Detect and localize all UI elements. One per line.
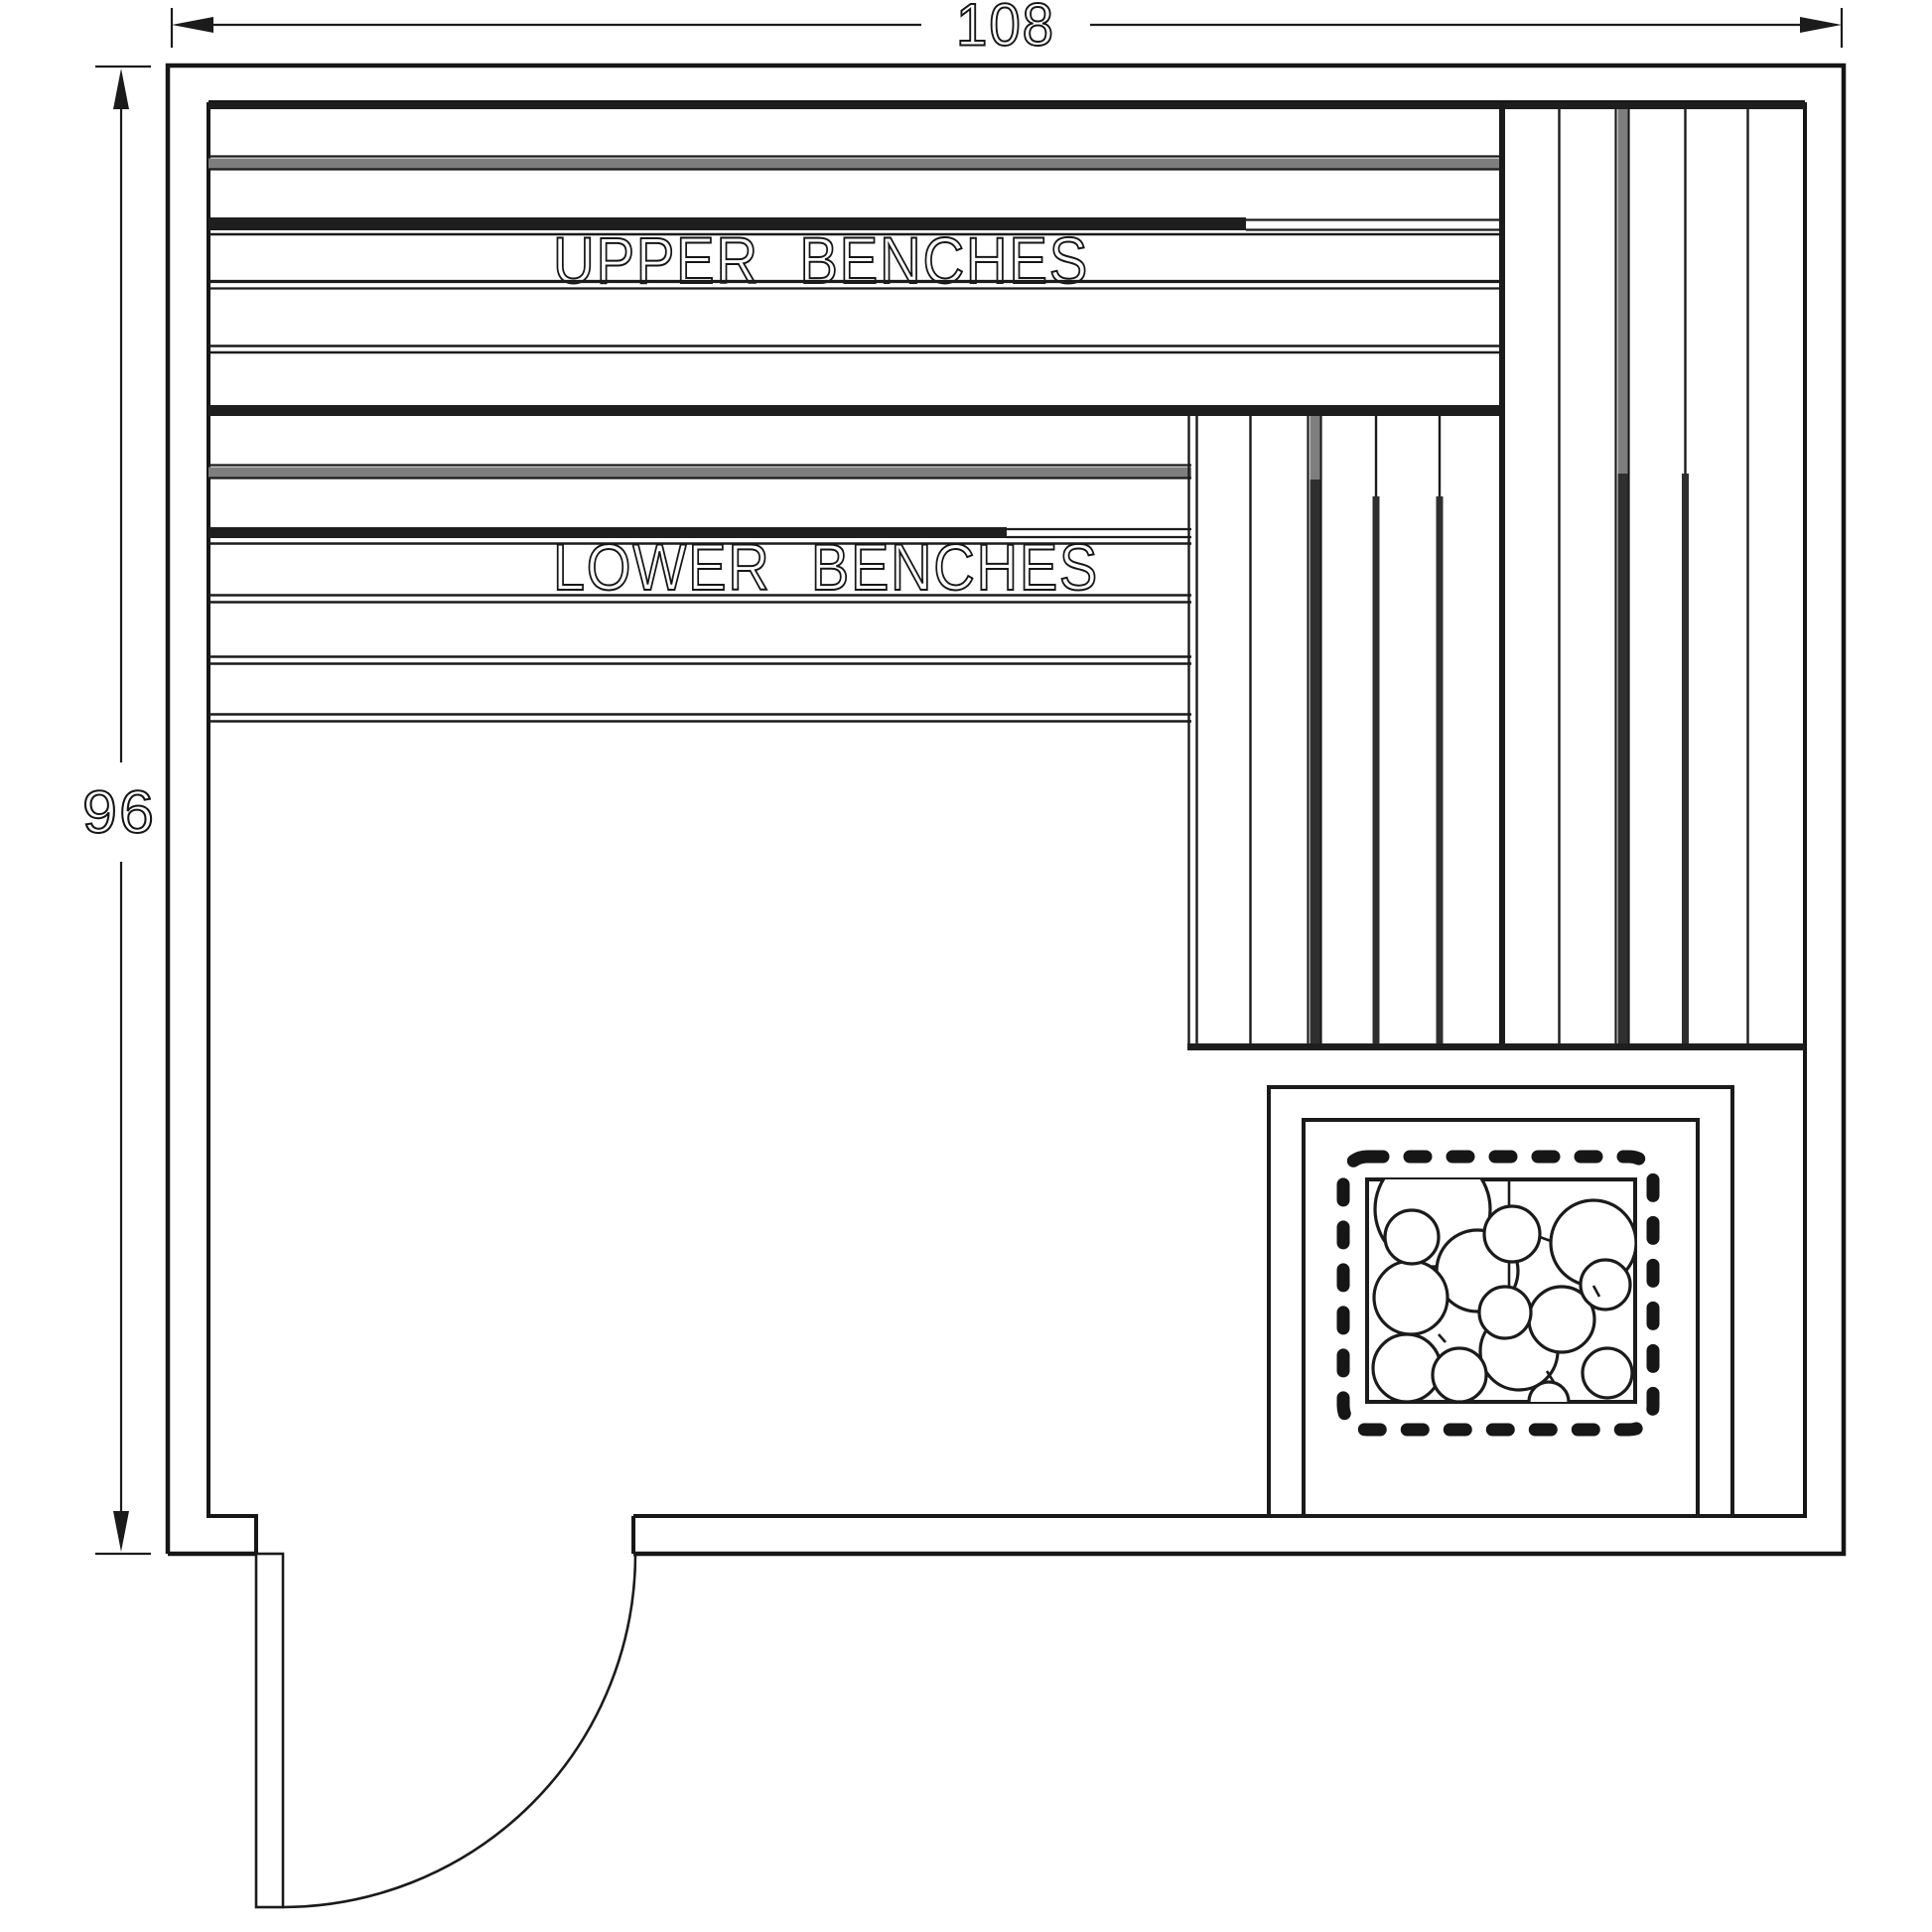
dark-plank-stripe (1437, 496, 1444, 1043)
arrow-right-icon (1800, 17, 1842, 33)
arrow-up-icon (113, 69, 129, 109)
heater-rocks (1373, 1152, 1636, 1422)
bench-top-edge (208, 405, 1502, 416)
rock (1433, 1348, 1486, 1402)
upper-benches: UPPER BENCHES (208, 102, 1805, 352)
upper-benches-label: UPPER BENCHES (553, 223, 1089, 297)
rock (1385, 1210, 1439, 1264)
dimension-width: 108 (172, 0, 1842, 59)
dark-plank-stripe (1373, 496, 1380, 1043)
rock (1374, 1261, 1448, 1334)
rock (1529, 1382, 1569, 1422)
dark-plank-stripe (1311, 480, 1320, 1043)
door-leaf (256, 1554, 283, 1907)
door (256, 1554, 635, 1907)
dimension-height: 96 (82, 67, 156, 1554)
bench-front-edge (1187, 1043, 1805, 1050)
bench-top-edge (208, 102, 1805, 109)
gray-plank-stripe (1311, 416, 1320, 480)
dark-plank-stripe (1618, 474, 1628, 1043)
rock (1581, 1260, 1630, 1310)
gray-plank-stripe (208, 159, 1502, 169)
dimension-width-value: 108 (956, 0, 1055, 59)
plank-line (208, 657, 1191, 664)
gray-plank-stripe (1618, 109, 1628, 474)
rock (1583, 1348, 1632, 1398)
corner-bench-planks (1187, 416, 1805, 1050)
plank-line (1246, 220, 1502, 230)
sauna-floor-plan: 108 96 UPPER BENCHES LOWER BENCHES (0, 0, 1932, 1932)
arrow-left-icon (172, 17, 213, 33)
gray-plank-stripe (208, 468, 1191, 478)
rock (1373, 1334, 1441, 1402)
arrow-down-icon (113, 1511, 129, 1552)
right-bench-planks (1502, 102, 1748, 1043)
lower-benches-label: LOWER BENCHES (553, 530, 1099, 604)
bench-front-edge (208, 715, 1191, 722)
dimension-height-value: 96 (82, 779, 156, 846)
dark-plank-stripe (1682, 474, 1689, 1043)
bench-left-edge (1189, 416, 1197, 1043)
bench-bottom-edge (208, 346, 1502, 353)
plan-drawing: 108 96 UPPER BENCHES LOWER BENCHES (0, 0, 1932, 1932)
heater (1269, 1087, 1732, 1516)
rock (1484, 1206, 1540, 1262)
rock (1479, 1287, 1531, 1338)
door-swing-arc (283, 1554, 636, 1907)
